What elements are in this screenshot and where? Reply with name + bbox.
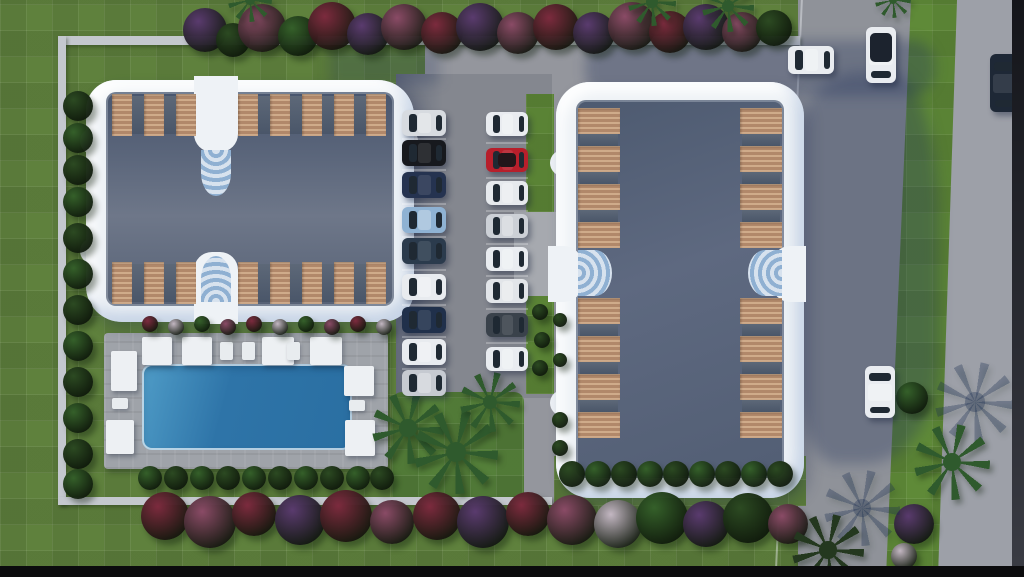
median-bush [894, 504, 934, 544]
flower-bush [506, 492, 550, 536]
hedge-bush [741, 461, 767, 487]
car-glass [409, 144, 416, 163]
hedge-bush [164, 466, 188, 490]
balcony-divider [580, 324, 618, 336]
car-glass [870, 33, 893, 62]
balcony-wood-deck [740, 184, 782, 210]
balcony-divider [580, 172, 618, 184]
car-glass [409, 374, 416, 393]
parking-stall-line [402, 203, 446, 205]
hedge-bush [559, 461, 585, 487]
sun-lounger [220, 342, 233, 360]
car-glass [519, 218, 524, 233]
car-glass [795, 50, 803, 70]
palm-crown [819, 541, 836, 558]
pool-umbrella [310, 337, 342, 365]
balcony-wood-deck [112, 94, 132, 136]
flower-bush [275, 495, 325, 545]
car-glass [418, 113, 430, 134]
median-bush [896, 382, 928, 414]
parked-car [486, 181, 528, 205]
balcony-wood-deck [578, 374, 620, 400]
car-glass [519, 283, 524, 298]
hedge-tree [63, 223, 93, 253]
balcony-divider [322, 264, 334, 302]
parked-car [486, 247, 528, 271]
stairs-icon [201, 256, 231, 302]
driving-white-car-south [865, 366, 895, 418]
palm-tree [460, 372, 520, 432]
pool-umbrella [106, 420, 134, 454]
palm-crown [943, 453, 961, 471]
car-glass [870, 407, 889, 413]
hedge-bush [552, 412, 568, 428]
car-glass [436, 115, 442, 132]
hedge-tree [63, 295, 93, 325]
west-building-stairwell-notch-top [194, 76, 238, 152]
parking-stall-line [402, 138, 446, 140]
stairs-icon [748, 250, 782, 296]
palm-crown [245, 0, 256, 5]
flowering-tree [533, 4, 579, 50]
car-glass [436, 177, 442, 194]
car-glass [418, 373, 430, 394]
balcony-wood-deck [578, 298, 620, 324]
car-glass [824, 51, 830, 69]
palm-crown [483, 395, 497, 409]
balcony-wood-deck [144, 94, 164, 136]
palm-crown [399, 419, 416, 436]
car-glass [436, 312, 442, 329]
balcony-wood-deck [334, 262, 354, 304]
balcony-wood-deck [238, 262, 258, 304]
palm-crown [853, 499, 871, 517]
parking-stall-line [402, 236, 446, 238]
hedge-bush [553, 353, 567, 367]
hedge-bush [663, 461, 689, 487]
balcony-divider [258, 264, 270, 302]
hedge-bush [689, 461, 715, 487]
parking-stall-line [486, 177, 528, 179]
balcony-wood-deck [238, 94, 258, 136]
garden-strip-north [526, 94, 554, 212]
car-glass [436, 243, 442, 260]
balcony-wood-deck [578, 108, 620, 134]
deck-shrub [324, 319, 340, 335]
hedge-tree [63, 155, 93, 185]
balcony-wood-deck [176, 262, 196, 304]
parking-stall-line [486, 342, 528, 344]
west-building-shadow [330, 50, 440, 84]
balcony-divider [132, 96, 144, 134]
parked-car [402, 274, 446, 300]
hedge-tree [63, 91, 93, 121]
deck-shrub [376, 319, 392, 335]
deck-shrub [220, 319, 236, 335]
image-edge-vignette [1012, 0, 1024, 577]
flowering-tree [381, 4, 427, 50]
flower-bush [141, 492, 189, 540]
car-glass [409, 211, 416, 230]
balcony-wood-deck [740, 412, 782, 438]
balcony-divider [580, 210, 618, 222]
parked-car [486, 279, 528, 303]
hedge-bush [553, 313, 567, 327]
stairs-icon [201, 150, 231, 196]
hedge-tree [63, 259, 93, 289]
flower-bush [594, 500, 642, 548]
balcony-wood-deck [578, 146, 620, 172]
car-glass [409, 311, 416, 330]
balcony-divider [742, 400, 780, 412]
car-glass [502, 281, 514, 300]
parked-car [402, 110, 446, 136]
parking-stall-line [486, 275, 528, 277]
balcony-wood-deck [740, 146, 782, 172]
balcony-wood-deck [740, 222, 782, 248]
parking-stall-line [402, 169, 446, 171]
car-glass [498, 153, 516, 167]
parking-stall-line [486, 243, 528, 245]
car-glass [493, 184, 500, 201]
car-glass [436, 212, 442, 229]
car-glass [409, 278, 416, 297]
parked-white-car [788, 46, 834, 74]
palm-crown [722, 0, 734, 12]
car-glass [519, 251, 524, 266]
balcony-divider [580, 400, 618, 412]
hedge-tree [63, 469, 93, 499]
hedge-bush [268, 466, 292, 490]
car-glass [418, 210, 430, 231]
car-glass [519, 152, 524, 167]
balcony-divider [290, 96, 302, 134]
hedge-bush [138, 466, 162, 490]
car-glass [409, 114, 416, 133]
pool-umbrella [182, 337, 212, 365]
swimming-pool [142, 364, 352, 450]
car-glass [418, 342, 430, 363]
car-glass [871, 71, 890, 78]
parked-car [486, 112, 528, 136]
balcony-divider [742, 324, 780, 336]
hedge-tree [63, 367, 93, 397]
deck-shrub [272, 319, 288, 335]
balcony-divider [322, 96, 334, 134]
car-glass [502, 114, 514, 133]
car-glass [418, 277, 430, 298]
car-glass [493, 217, 500, 234]
balcony-divider [164, 96, 176, 134]
flower-bush [320, 490, 372, 542]
balcony-wood-deck [740, 374, 782, 400]
car-glass [493, 250, 500, 267]
flowering-tree [497, 12, 539, 54]
balcony-divider [742, 134, 780, 146]
parking-stall-line [402, 269, 446, 271]
balcony-wood-deck [366, 94, 386, 136]
car-glass [418, 241, 430, 262]
car-glass [502, 249, 514, 268]
hedge-bush [767, 461, 793, 487]
flower-bush [636, 492, 688, 544]
car-glass [502, 216, 514, 235]
pool-umbrella [344, 366, 374, 396]
flower-bush [232, 492, 276, 536]
parked-car [402, 140, 446, 166]
balcony-wood-deck [366, 262, 386, 304]
balcony-divider [742, 210, 780, 222]
hedge-bush [552, 440, 568, 456]
balcony-wood-deck [176, 94, 196, 136]
parking-stall-line [486, 308, 528, 310]
hedge-bush [611, 461, 637, 487]
pool-umbrella [111, 351, 137, 391]
car-glass [418, 310, 430, 331]
car-glass [493, 350, 500, 367]
palm-crown [646, 0, 658, 8]
parked-car [402, 370, 446, 396]
balcony-divider [290, 264, 302, 302]
hedge-tree [63, 187, 93, 217]
car-glass [519, 116, 524, 131]
deck-shrub [142, 316, 158, 332]
flower-bush [457, 496, 509, 548]
driving-white-car-dark-roof [866, 27, 896, 83]
palm-tree [914, 424, 990, 500]
car-glass [502, 183, 514, 202]
car-glass [519, 185, 524, 200]
car-glass [418, 175, 430, 196]
deck-shrub [298, 316, 314, 332]
flower-bush [413, 492, 461, 540]
hedge-bush [532, 360, 548, 376]
hedge-bush [534, 332, 550, 348]
flowering-tree [756, 10, 792, 46]
pool-umbrella [142, 337, 172, 365]
car-glass [493, 316, 500, 333]
hedge-tree [63, 403, 93, 433]
flower-bush [184, 496, 236, 548]
balcony-divider [742, 362, 780, 374]
balcony-wood-deck [270, 94, 290, 136]
balcony-divider [164, 264, 176, 302]
parking-stall-line [402, 336, 446, 338]
parking-stall-line [486, 210, 528, 212]
parked-car [402, 238, 446, 264]
car-glass [868, 384, 892, 401]
car-glass [409, 176, 416, 195]
balcony-wood-deck [302, 262, 322, 304]
balcony-wood-deck [578, 336, 620, 362]
car-glass [502, 349, 514, 368]
palm-crown [889, 0, 898, 4]
east-building-stairwell-notch-left [548, 246, 582, 302]
stairs-icon [578, 250, 612, 296]
hedge-bush [715, 461, 741, 487]
balcony-wood-deck [112, 262, 132, 304]
car-glass [519, 317, 524, 332]
deck-shrub [246, 316, 262, 332]
site-plan-render [0, 0, 1024, 577]
balcony-divider [258, 96, 270, 134]
parking-stall-line [402, 368, 446, 370]
car-glass [493, 115, 500, 132]
car-glass [409, 343, 416, 362]
sun-lounger [242, 342, 255, 360]
car-glass [418, 143, 430, 164]
parked-car [486, 148, 528, 172]
deck-shrub [168, 319, 184, 335]
balcony-divider [132, 264, 144, 302]
flower-bush [683, 501, 729, 547]
car-glass [805, 49, 818, 71]
flower-bush [723, 493, 773, 543]
balcony-wood-deck [578, 412, 620, 438]
hedge-bush [216, 466, 240, 490]
balcony-wood-deck [578, 184, 620, 210]
hedge-tree [63, 123, 93, 153]
car-glass [409, 242, 416, 261]
hedge-bush [190, 466, 214, 490]
car-glass [995, 100, 1013, 107]
hedge-bush [532, 304, 548, 320]
parked-car [402, 307, 446, 333]
balcony-wood-deck [302, 94, 322, 136]
balcony-wood-deck [740, 108, 782, 134]
parked-car [486, 347, 528, 371]
sun-lounger [349, 400, 365, 411]
flower-bush [547, 495, 597, 545]
balcony-wood-deck [334, 94, 354, 136]
car-glass [436, 145, 442, 162]
car-glass [436, 344, 442, 361]
hedge-tree [63, 331, 93, 361]
parking-stall-line [486, 142, 528, 144]
deck-shrub [350, 316, 366, 332]
car-glass [493, 282, 500, 299]
car-glass [502, 315, 514, 334]
balcony-wood-deck [740, 298, 782, 324]
balcony-divider [580, 134, 618, 146]
car-glass [436, 375, 442, 392]
hedge-bush [585, 461, 611, 487]
hedge-bush [242, 466, 266, 490]
hedge-bush [370, 466, 394, 490]
palm-crown [446, 442, 466, 462]
hedge-bush [294, 466, 318, 490]
parked-car [402, 339, 446, 365]
sun-lounger [287, 342, 300, 360]
balcony-divider [354, 96, 366, 134]
hedge-bush [637, 461, 663, 487]
car-glass [436, 279, 442, 296]
balcony-wood-deck [144, 262, 164, 304]
hedge-bush [320, 466, 344, 490]
flower-bush [370, 500, 414, 544]
hedge-tree [63, 439, 93, 469]
hedge-bush [346, 466, 370, 490]
palm-crown [965, 392, 984, 411]
parked-car [486, 214, 528, 238]
parked-car [402, 172, 446, 198]
balcony-divider [580, 362, 618, 374]
balcony-divider [354, 264, 366, 302]
balcony-wood-deck [740, 336, 782, 362]
car-glass [869, 373, 891, 381]
parked-car [486, 313, 528, 337]
letterbox-bar [0, 566, 1024, 577]
balcony-wood-deck [578, 222, 620, 248]
deck-shrub [194, 316, 210, 332]
sun-lounger [112, 398, 128, 409]
car-glass [519, 351, 524, 366]
pool-umbrella [345, 420, 375, 456]
parked-car [402, 207, 446, 233]
parking-stall-line [402, 304, 446, 306]
balcony-wood-deck [270, 262, 290, 304]
balcony-divider [742, 172, 780, 184]
